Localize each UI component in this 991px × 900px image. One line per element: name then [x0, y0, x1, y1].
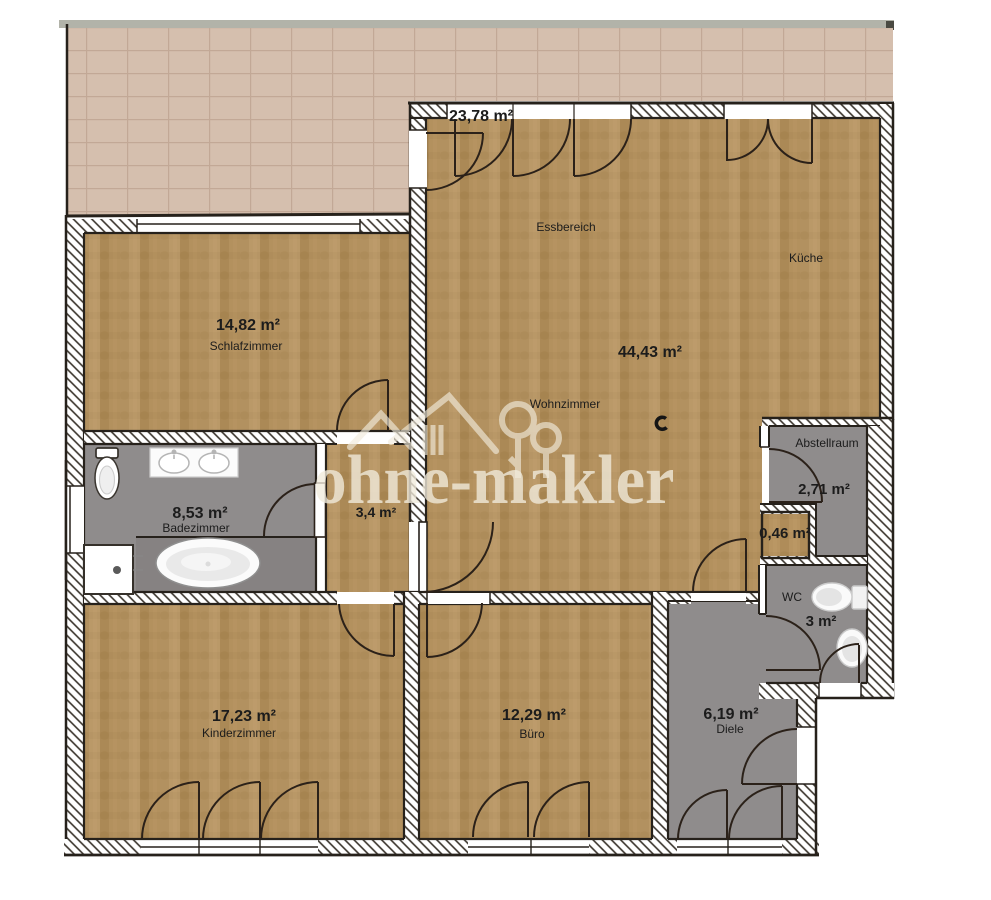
svg-text:8,53 m²: 8,53 m² [172, 505, 227, 522]
svg-text:Kinderzimmer: Kinderzimmer [202, 726, 276, 740]
svg-text:0,46 m²: 0,46 m² [759, 525, 811, 542]
svg-text:2,71 m²: 2,71 m² [798, 481, 850, 498]
svg-text:ohne-makler: ohne-makler [314, 442, 675, 519]
svg-text:14,82 m²: 14,82 m² [216, 317, 280, 334]
svg-text:Badezimmer: Badezimmer [162, 521, 229, 535]
svg-text:44,43 m²: 44,43 m² [618, 344, 682, 361]
svg-text:Schlafzimmer: Schlafzimmer [210, 339, 283, 353]
svg-text:Abstellraum: Abstellraum [795, 436, 858, 450]
svg-text:Büro: Büro [519, 727, 545, 741]
svg-text:WC: WC [782, 590, 802, 604]
svg-text:Wohnzimmer: Wohnzimmer [530, 397, 600, 411]
svg-text:Diele: Diele [716, 722, 744, 736]
svg-text:17,23 m²: 17,23 m² [212, 708, 276, 725]
svg-text:Essbereich: Essbereich [536, 220, 595, 234]
svg-text:Küche: Küche [789, 251, 823, 265]
svg-text:6,19 m²: 6,19 m² [703, 706, 758, 723]
svg-text:3 m²: 3 m² [806, 613, 837, 630]
svg-text:12,29 m²: 12,29 m² [502, 707, 566, 724]
svg-text:23,78 m²: 23,78 m² [449, 108, 513, 125]
